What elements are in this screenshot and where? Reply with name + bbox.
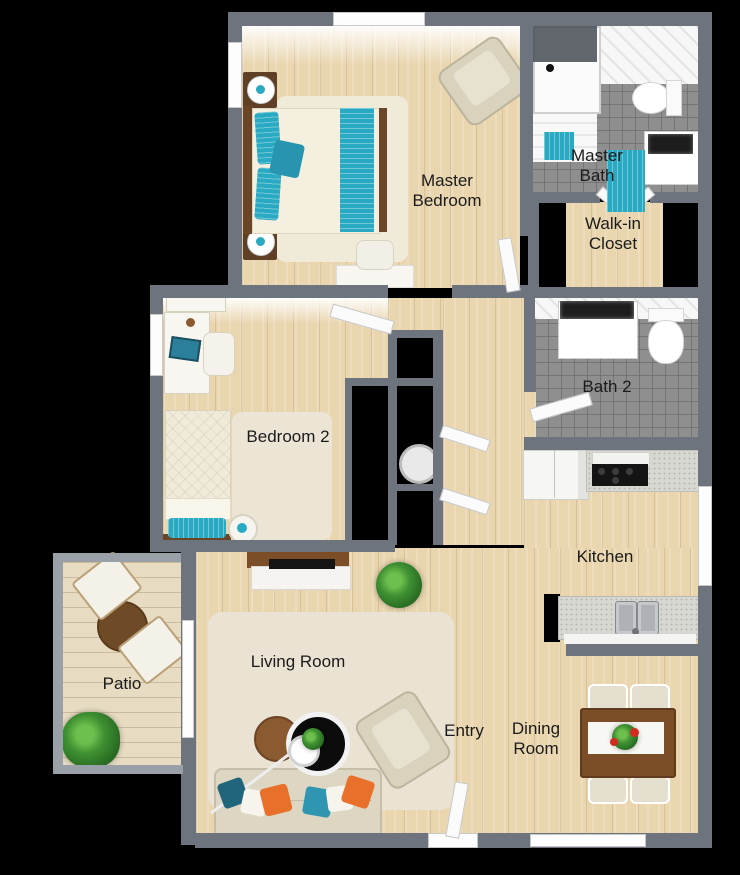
- sink-basin: [637, 601, 659, 635]
- bedroom-2-window: [150, 314, 163, 376]
- wall-master-bottom-a: [150, 285, 388, 298]
- laptop: [169, 336, 202, 362]
- patio-rail-left: [53, 553, 63, 774]
- patio-rail-bottom: [53, 765, 183, 774]
- centerpiece-flower: [610, 738, 618, 746]
- master-bedroom-window-top: [333, 12, 425, 26]
- hall-closet-lower: [397, 491, 433, 540]
- wall-bath2-bottom: [524, 437, 698, 450]
- bedside-table-accent: [237, 523, 247, 533]
- wall-closet-column-top: [388, 330, 443, 338]
- master-bed-headboard: [243, 106, 252, 234]
- room-label-entry: Entry: [444, 721, 484, 741]
- master-bed-pillow: [254, 167, 282, 221]
- wall-bath-closet-b: [650, 192, 698, 203]
- floor-plan: Master Bedroom Master Bath Walk-in Close…: [0, 0, 740, 875]
- room-label-master-bath: Master Bath: [571, 146, 623, 186]
- centerpiece-flower: [630, 728, 639, 737]
- tv-console-base: [251, 566, 351, 590]
- burner: [612, 477, 619, 484]
- shower-glass: [533, 26, 597, 62]
- towel-stack: [544, 132, 574, 160]
- single-bed-sheet: [165, 498, 231, 520]
- master-bed-footboard: [379, 108, 387, 232]
- master-bed-runner: [340, 108, 374, 232]
- hall-closet-upper: [397, 338, 433, 378]
- burner: [612, 468, 619, 475]
- table-lamp-center: [256, 85, 265, 94]
- single-bed-pillow: [168, 518, 226, 538]
- wall-bath2-left: [524, 287, 535, 392]
- room-label-walk-in-closet: Walk-in Closet: [585, 214, 641, 254]
- room-label-patio: Patio: [103, 674, 142, 694]
- burner: [626, 468, 633, 475]
- room-label-living-room: Living Room: [251, 652, 346, 672]
- desk-chair: [356, 240, 394, 270]
- desk-chair: [203, 332, 235, 376]
- wall-closet-left: [528, 192, 539, 298]
- bedroom-2-closet: [352, 386, 388, 540]
- room-label-bath-2: Bath 2: [582, 377, 631, 397]
- patio-plant: [62, 712, 120, 768]
- wall-peninsula-base: [566, 644, 698, 656]
- wall-right-outer: [698, 12, 712, 848]
- peninsula-cabinet-face: [564, 634, 696, 644]
- wall-utility-divider: [397, 484, 433, 491]
- room-label-dining-room: Dining Room: [512, 719, 560, 759]
- refrigerator-door-split: [554, 450, 555, 498]
- refrigerator: [523, 450, 589, 500]
- toilet-bowl: [648, 320, 684, 364]
- coffee-table-plant: [302, 728, 324, 750]
- toilet-bowl: [632, 82, 670, 114]
- room-label-bedroom-2: Bedroom 2: [246, 427, 329, 447]
- room-label-master-bedroom: Master Bedroom: [413, 171, 482, 211]
- dining-chair: [630, 776, 670, 804]
- wall-bedroom2-bottom: [150, 540, 395, 552]
- floor-plant: [376, 562, 422, 608]
- hall-door-landing: [388, 298, 443, 332]
- patio-sliding-door: [182, 620, 194, 738]
- wall-bedroom2-closet-left: [345, 378, 352, 542]
- living-room-window: [530, 834, 646, 847]
- single-bed-quilt: [165, 410, 231, 500]
- toilet-tank: [666, 80, 682, 116]
- wall-closet-bath2-divider: [524, 287, 698, 298]
- wall-closet-column-left: [388, 330, 397, 545]
- desk-mug: [186, 318, 195, 327]
- kitchen-window: [698, 486, 712, 586]
- table-lamp-center: [256, 237, 265, 246]
- burner: [598, 468, 605, 475]
- shower-drain: [546, 64, 554, 72]
- wall-top: [228, 12, 712, 26]
- tv-screen: [269, 559, 335, 569]
- master-bedroom-window-left: [228, 42, 242, 108]
- dining-chair: [588, 776, 628, 804]
- wall-closet-shelf-divider: [345, 378, 443, 386]
- closet-shelf-left: [539, 202, 566, 290]
- patio-rail-top: [53, 553, 181, 562]
- room-label-kitchen: Kitchen: [577, 547, 634, 567]
- vanity-mirror: [648, 134, 693, 154]
- master-bath-wall-panel: [600, 26, 698, 84]
- vanity-mirror: [560, 301, 634, 319]
- closet-shelf-right: [663, 202, 698, 290]
